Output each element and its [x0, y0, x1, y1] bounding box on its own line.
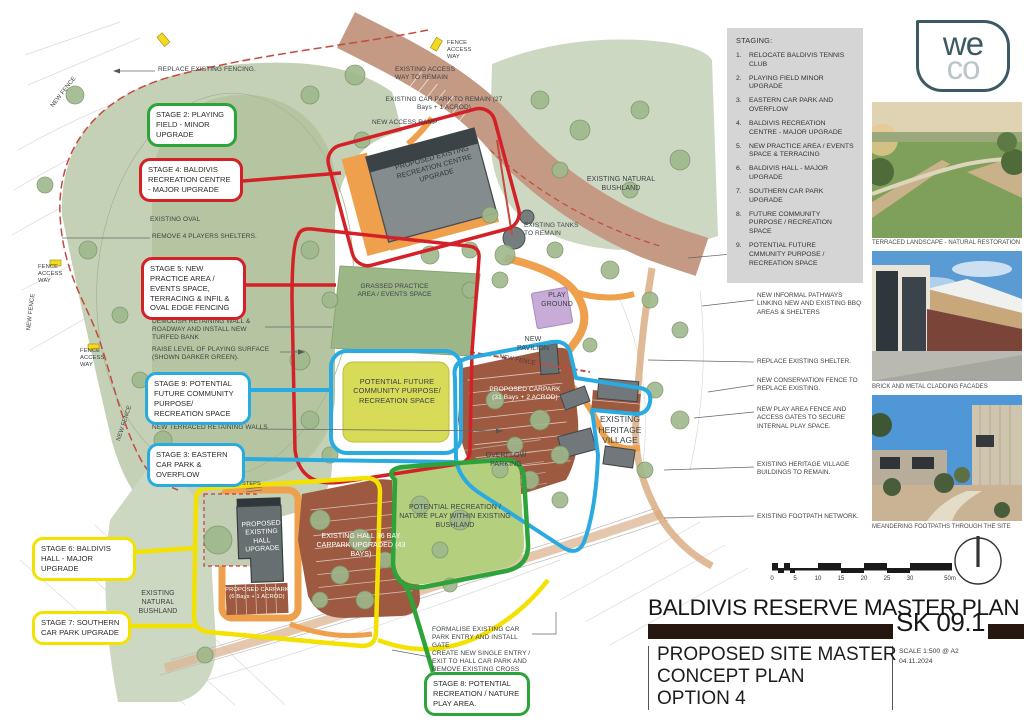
- title-bar-right: [988, 624, 1024, 639]
- label-remove-shelters: REMOVE 4 PLAYERS SHELTERS.: [152, 233, 272, 241]
- stage-callout-3: STAGE 3: EASTERN CAR PARK & OVERFLOW: [147, 443, 245, 487]
- stage-callout-6: STAGE 6: BALDIVIS HALL - MAJOR UPGRADE: [32, 537, 136, 581]
- scale-tick-10: 10: [815, 576, 822, 582]
- sheet-number: SK 09.1: [896, 607, 985, 638]
- stage-callout-7: STAGE 7: SOUTHERN CAR PARK UPGRADE: [32, 611, 131, 645]
- photo-caption-3: MEANDERING FOOTPATHS THROUGH THE SITE: [872, 524, 1022, 530]
- staging-item: BALDIVIS RECREATION CENTRE - MAJOR UPGRA…: [736, 120, 854, 138]
- staging-list: RELOCATE BALDIVIS TENNIS CLUB PLAYING FI…: [736, 52, 854, 269]
- scale-tick-25: 25: [884, 576, 891, 582]
- scale-tick-5: 5: [793, 576, 796, 582]
- logo-co: co: [947, 55, 980, 81]
- stage-callout-9: STAGE 9: POTENTIAL FUTURE COMMUNITY PURP…: [145, 372, 251, 425]
- photo-terraced-landscape: [872, 102, 1022, 238]
- note-footpath-network: EXISTING FOOTPATH NETWORK.: [757, 513, 863, 521]
- label-potential-future: POTENTIAL FUTURE COMMUNITY PURPOSE/ RECR…: [347, 377, 447, 405]
- label-hall-carpark: EXISTING HALL 36 BAY CARPARK UPGRADED (4…: [312, 533, 410, 559]
- photo-cladding-facades: [872, 251, 1022, 381]
- label-formalise: FORMALISE EXISTING CAR PARK ENTRY AND IN…: [432, 626, 532, 650]
- label-pavilion: NEW PAVILION: [510, 336, 556, 354]
- note-play-area-fence: NEW PLAY AREA FENCE AND ACCESS GATES TO …: [757, 406, 863, 431]
- photo-caption-2: BRICK AND METAL CLADDING FACADES: [872, 384, 1022, 390]
- stage-callout-5: STAGE 5: NEW PRACTICE AREA / EVENTS SPAC…: [141, 257, 246, 320]
- label-fence-access-left2: FENCE ACCESS WAY: [80, 348, 110, 370]
- label-overflow: OVERFLOW PARKING: [477, 452, 535, 470]
- scale-tick-15: 15: [838, 576, 845, 582]
- title-bar-left: [648, 624, 893, 639]
- north-arrow: [955, 536, 1001, 584]
- label-demolish-wall: DEMOLISH RETAINING WALL & ROADWAY AND IN…: [152, 318, 264, 342]
- staging-item: PLAYING FIELD MINOR UPGRADE: [736, 75, 854, 93]
- staging-item: SOUTHERN CAR PARK UPGRADE: [736, 188, 854, 206]
- label-proposed-carpark: PROPOSED CARPARK (31 Bays + 2 ACROD): [488, 386, 562, 402]
- drawing-sheet: EXISTING OVAL REMOVE 4 PLAYERS SHELTERS.…: [0, 0, 1024, 724]
- label-playground: PLAY GROUND: [534, 292, 580, 310]
- label-terraced-walls: NEW TERRACED RETAINING WALLS: [152, 424, 282, 432]
- title-divider-left: [648, 646, 649, 710]
- label-existing-oval: EXISTING OVAL: [150, 216, 220, 224]
- label-tanks: EXISTING TANKS TO REMAIN: [524, 222, 588, 238]
- photo-meandering-footpaths: [872, 395, 1022, 521]
- stage-callout-4: STAGE 4: BALDIVIS RECREATION CENTRE - MA…: [139, 158, 243, 202]
- note-heritage-buildings: EXISTING HERITAGE VILLAGE BUILDINGS TO R…: [757, 461, 863, 478]
- label-access-way-remain: EXISTING ACCESS WAY TO REMAIN: [395, 66, 457, 82]
- scale-tick-30: 30: [907, 576, 914, 582]
- label-nature-play: POTENTIAL RECREATION / NATURE PLAY WITHI…: [398, 504, 512, 530]
- note-informal-pathways: NEW INFORMAL PATHWAYS LINKING NEW AND EX…: [757, 292, 863, 317]
- practice-area: [331, 266, 480, 356]
- weco-logo: we co: [916, 20, 1010, 92]
- label-new-access-ramp: NEW ACCESS RAMP: [372, 119, 452, 127]
- note-conservation-fence: NEW CONSERVATION FENCE TO REPLACE EXISTI…: [757, 377, 863, 394]
- label-bushland-ne: EXISTING NATURAL BUSHLAND: [585, 176, 657, 194]
- label-fence-access-left1: FENCE ACCESS WAY: [38, 264, 72, 286]
- drawing-title-line3: OPTION 4: [657, 688, 897, 710]
- scale-bar: [772, 563, 952, 573]
- photo-caption-1: TERRACED LANDSCAPE - NATURAL RESTORATION: [872, 240, 1022, 246]
- scale-tick-20: 20: [861, 576, 868, 582]
- stage-callout-8: STAGE 8: POTENTIAL RECREATION / NATURE P…: [424, 672, 530, 716]
- label-practice-area: GRASSED PRACTICE AREA / EVENTS SPACE: [352, 283, 437, 299]
- staging-item: EASTERN CAR PARK AND OVERFLOW: [736, 97, 854, 115]
- note-replace-shelter: REPLACE EXISTING SHELTER.: [757, 358, 863, 366]
- label-raise-level: RAISE LEVEL OF PLAYING SURFACE (SHOWN DA…: [152, 346, 278, 362]
- stage-callout-2: STAGE 2: PLAYING FIELD - MINOR UPGRADE: [147, 103, 237, 147]
- staging-item: BALDIVIS HALL - MAJOR UPGRADE: [736, 165, 854, 183]
- staging-heading: STAGING:: [736, 36, 854, 45]
- drawing-title-line1: PROPOSED SITE MASTER: [657, 644, 897, 666]
- scale-tick-50m: 50m: [944, 576, 956, 582]
- staging-item: FUTURE COMMUNITY PURPOSE / RECREATION SP…: [736, 211, 854, 237]
- label-car-park-remain: EXISTING CAR PARK TO REMAIN (27 Bays + 1…: [378, 96, 510, 112]
- staging-item: POTENTIAL FUTURE CMMUNITY PURPOSE / RECR…: [736, 242, 854, 268]
- staging-item: RELOCATE BALDIVIS TENNIS CLUB: [736, 52, 854, 70]
- label-replace-fencing: REPLACE EXISTING FENCING.: [158, 66, 288, 74]
- drawing-date: 04.11.2024: [899, 658, 933, 665]
- staging-item: NEW PRACTICE AREA / EVENTS SPACE & TERRA…: [736, 143, 854, 161]
- label-heritage: EXISTING HERITAGE VILLAGE: [588, 414, 652, 446]
- label-fence-access-top: FENCE ACCESS WAY: [447, 40, 481, 62]
- label-bushland-sw: EXISTING NATURAL BUSHLAND: [126, 590, 190, 616]
- scale-tick-0: 0: [770, 576, 773, 582]
- drawing-title: PROPOSED SITE MASTER CONCEPT PLAN OPTION…: [657, 644, 897, 710]
- staging-panel: STAGING: RELOCATE BALDIVIS TENNIS CLUB P…: [727, 28, 863, 283]
- drawing-scale: SCALE 1:500 @ A2: [899, 648, 959, 655]
- label-hall: PROPOSED EXISTING HALL UPGRADE: [236, 519, 288, 556]
- drawing-title-line2: CONCEPT PLAN: [657, 666, 897, 688]
- label-steps: STEPS: [242, 481, 261, 488]
- label-hall-carpark-small: PROPOSED CARPARK (6 Bays + 1 ACROD): [224, 587, 290, 601]
